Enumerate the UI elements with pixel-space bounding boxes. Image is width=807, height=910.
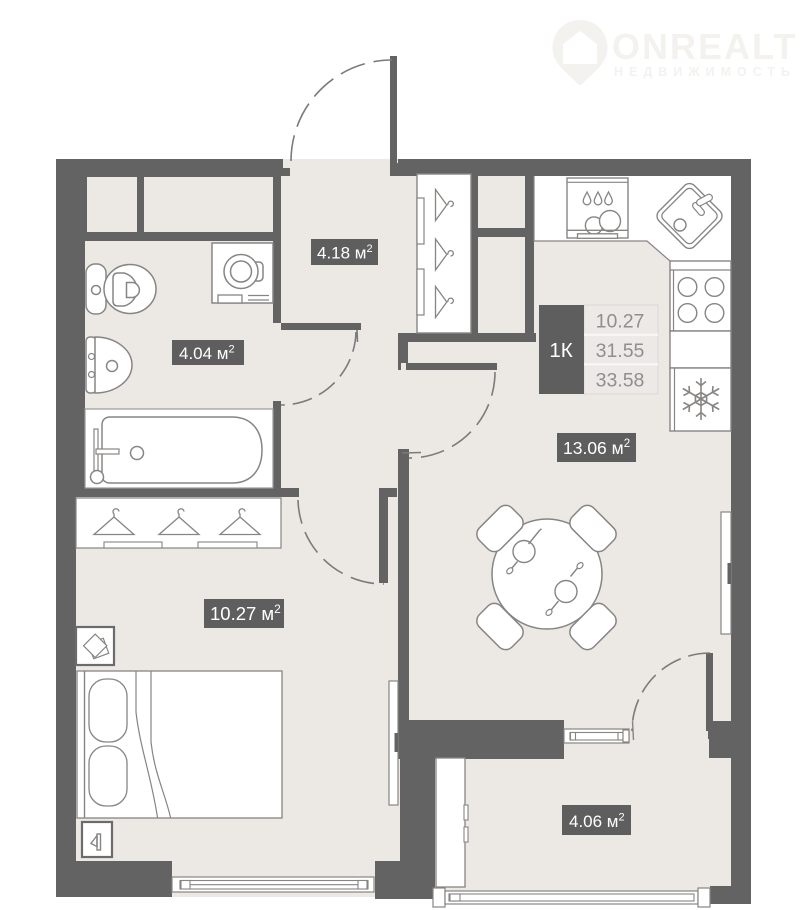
svg-text:НЕДВИЖИМОСТЬ: НЕДВИЖИМОСТЬ (614, 65, 796, 79)
svg-text:31.55: 31.55 (596, 340, 645, 362)
svg-text:ONREALT: ONREALT (612, 26, 797, 67)
svg-text:4.04 м2: 4.04 м2 (179, 344, 235, 364)
svg-text:4.06 м2: 4.06 м2 (569, 812, 625, 832)
svg-text:13.06 м2: 13.06 м2 (563, 438, 630, 458)
svg-text:33.58: 33.58 (596, 370, 645, 392)
svg-text:1К: 1К (549, 339, 572, 362)
svg-text:4.18 м2: 4.18 м2 (317, 243, 373, 263)
svg-text:10.27: 10.27 (596, 311, 645, 333)
svg-text:10.27 м2: 10.27 м2 (210, 602, 281, 624)
